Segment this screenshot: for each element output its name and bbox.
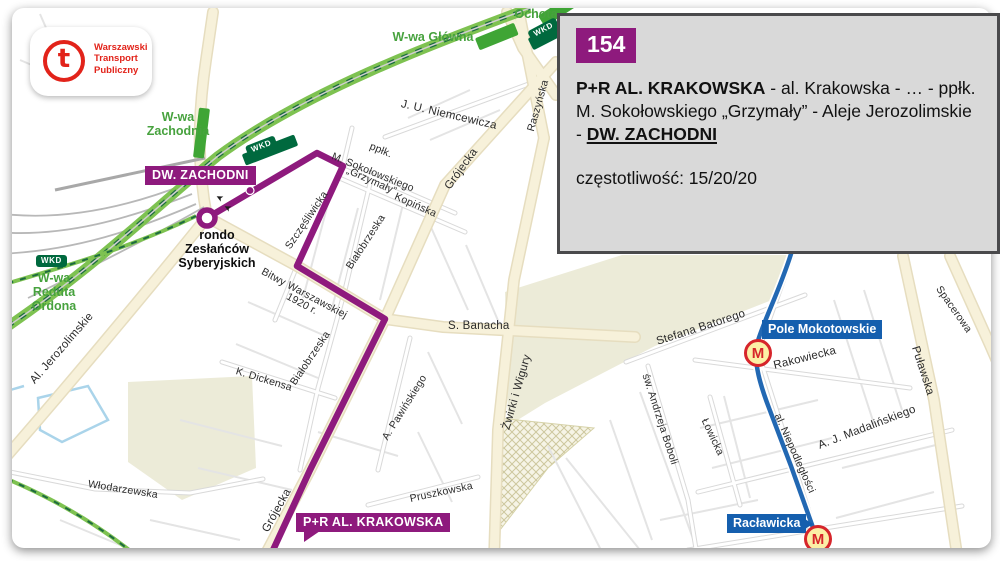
frequency-text: częstotliwość: 15/20/20 — [576, 168, 981, 189]
street-label: A. J. Madalińskiego — [817, 404, 918, 452]
street-label: Włodarzewska — [87, 479, 158, 500]
terminus-badge: DW. ZACHODNI — [145, 166, 256, 185]
route-info-panel: 154 P+R AL. KRAKOWSKA - al. Krakowska - … — [557, 13, 1000, 254]
street-label: Żwirki i Wigury — [501, 353, 533, 431]
street-label: ppłk. — [368, 141, 393, 159]
street-label: Białobrzeska — [289, 329, 333, 387]
street-label: J. U. Niemcewicza — [400, 99, 498, 132]
wtp-logo: t Warszawski Transport Publiczny — [30, 27, 152, 96]
street-label: Kopińska — [393, 191, 438, 219]
transit-map-page: Al. JerozolimskieWłodarzewskaK. Dickensa… — [0, 0, 1000, 561]
metro-icon: M — [744, 339, 772, 367]
street-label: Grójecka — [443, 147, 480, 192]
street-label: Spacerowa — [934, 284, 974, 335]
rondo-label: rondo Zesłańców Syberyjskich — [158, 229, 276, 270]
wkd-station-badge: WKD — [36, 255, 67, 267]
route-direction-arrow: ➤ — [214, 192, 225, 203]
street-label: św. Andrzeja Boboli — [640, 373, 679, 466]
rail-station-label: W-wa Zachodnia — [143, 110, 213, 138]
metro-station-badge: Racławicka — [727, 514, 806, 533]
street-label: Pruszkowska — [409, 481, 474, 505]
wkd-station-badge: WKD — [245, 135, 278, 157]
wtp-logo-icon: t — [43, 40, 85, 82]
route-description: P+R AL. KRAKOWSKA - al. Krakowska - … - … — [576, 77, 981, 146]
route-destination: DW. ZACHODNI — [587, 124, 717, 144]
metro-station-badge: Pole Mokotowskie — [762, 320, 882, 339]
street-label: Łowicka — [699, 417, 725, 457]
street-label: K. Dickensa — [234, 366, 293, 393]
street-label: Białobrzeska — [345, 213, 388, 271]
street-label: Stefana Batorego — [655, 309, 747, 349]
street-label: al. Niepodległości — [772, 412, 817, 495]
street-label: Raszyńska — [526, 79, 551, 133]
street-label: Bitwy Warszawskiej — [260, 267, 349, 321]
street-label: Al. Jerozolimskie — [29, 311, 97, 386]
route-origin: P+R AL. KRAKOWSKA — [576, 78, 765, 98]
street-label: S. Banacha — [448, 321, 509, 333]
street-label: Rakowiecka — [773, 346, 838, 373]
street-label: Puławska — [909, 345, 936, 397]
street-label: Szczęśliwicka — [284, 189, 330, 251]
rail-station-label: W-wa Reduta Ordona — [22, 271, 86, 313]
street-label: Grójecka — [261, 487, 294, 534]
metro-icon: M — [804, 525, 832, 553]
line-number-badge: 154 — [576, 28, 636, 63]
wtp-logo-text: Warszawski Transport Publiczny — [94, 42, 148, 76]
terminus-badge: P+R AL. KRAKOWSKA — [296, 513, 450, 532]
street-label: A. Pawińskiego — [381, 373, 429, 442]
rail-station-label: W-wa Główna — [388, 30, 478, 44]
route-direction-arrow: ➤ — [222, 202, 233, 213]
